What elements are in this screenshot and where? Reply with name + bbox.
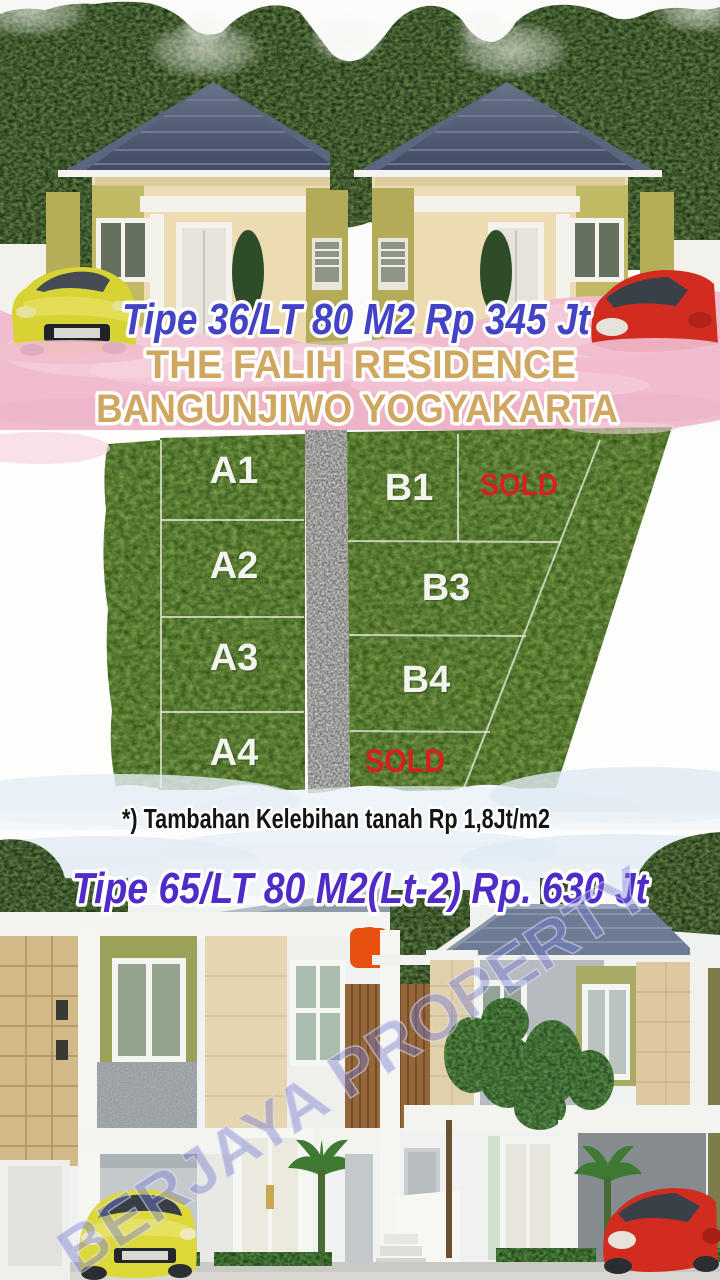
svg-text:BANGUNJIWO YOGYAKARTA: BANGUNJIWO YOGYAKARTA (96, 387, 618, 431)
svg-text:Tipe 36/LT 80 M2 Rp 345 Jt: Tipe 36/LT 80 M2 Rp 345 Jt (122, 295, 592, 344)
svg-text:A4: A4 (210, 732, 259, 774)
svg-text:A3: A3 (210, 637, 259, 679)
svg-text:B1: B1 (385, 467, 434, 509)
svg-text:SOLD: SOLD (365, 743, 445, 779)
svg-text:B4: B4 (402, 659, 451, 701)
svg-text:*) Tambahan Kelebihan tanah Rp: *) Tambahan Kelebihan tanah Rp 1,8Jt/m2 (122, 803, 550, 834)
svg-text:B3: B3 (422, 567, 471, 609)
svg-text:A1: A1 (210, 450, 259, 492)
svg-text:A2: A2 (210, 545, 259, 587)
svg-text:THE FALIH RESIDENCE: THE FALIH RESIDENCE (146, 343, 576, 387)
svg-text:SOLD: SOLD (480, 467, 558, 502)
